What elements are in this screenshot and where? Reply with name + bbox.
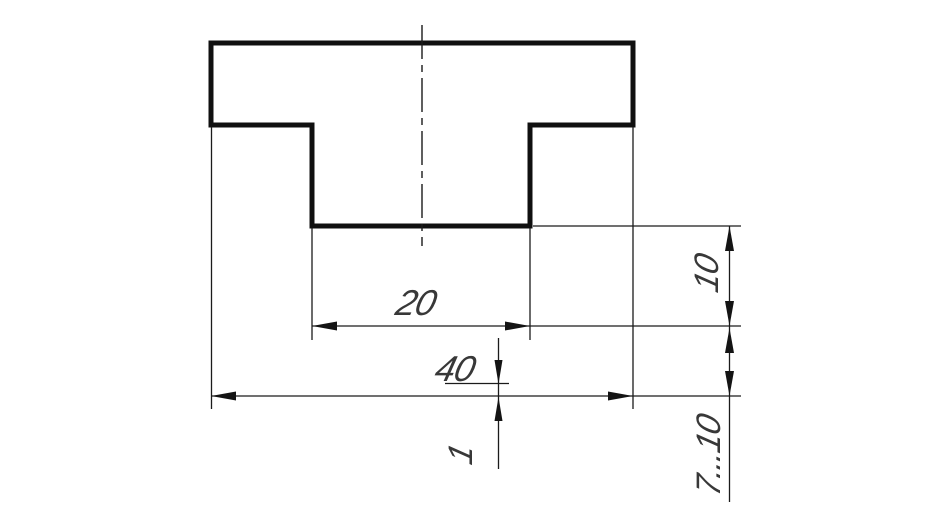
arrow-up-icon [725, 226, 734, 251]
arrow-down-icon [725, 301, 734, 326]
arrow-up-icon [725, 328, 734, 353]
arrow-right-icon [608, 392, 633, 401]
arrow-left-icon [312, 322, 337, 331]
dimension-label-20: 20 [391, 283, 442, 323]
technical-drawing: 20 40 1 10 7...10 [0, 0, 948, 528]
dimension-label-1: 1 [442, 441, 479, 468]
dimension-label-7-10: 7...10 [690, 410, 727, 499]
arrow-right-icon [505, 322, 530, 331]
arrow-up-icon [495, 397, 503, 421]
arrow-left-icon [211, 392, 236, 401]
arrow-down-icon [725, 371, 734, 396]
arrow-down-icon [495, 360, 503, 384]
dimension-label-10: 10 [688, 250, 725, 296]
dimension-label-40: 40 [431, 349, 481, 389]
drawing-canvas: 20 40 1 10 7...10 [0, 0, 948, 528]
